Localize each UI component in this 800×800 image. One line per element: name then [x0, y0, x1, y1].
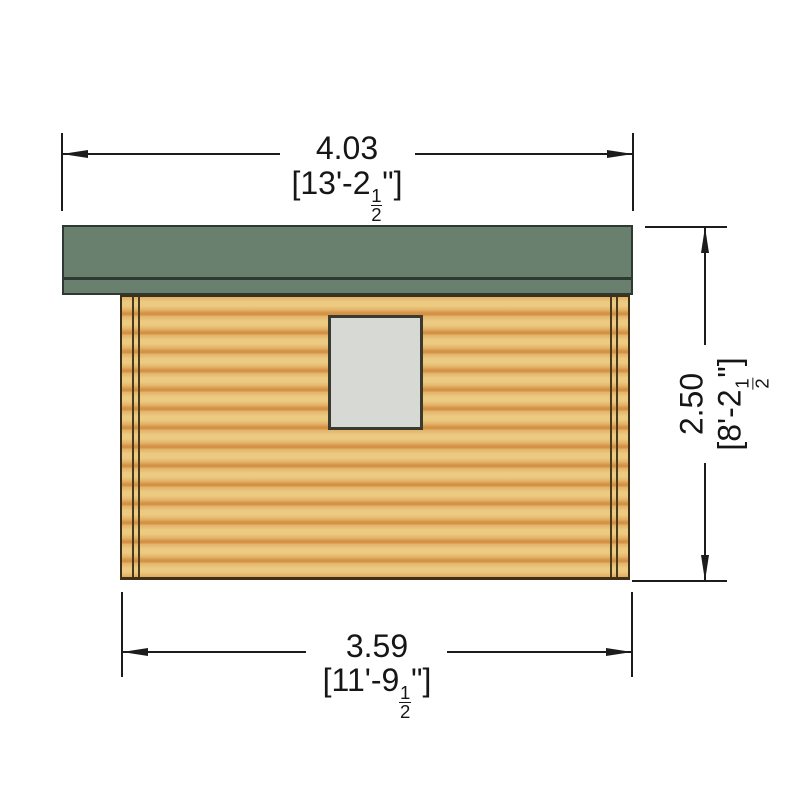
imperial-value: [8'-2 — [712, 389, 748, 450]
arrowhead-bottom — [701, 555, 709, 581]
fraction-denominator: 2 — [753, 378, 772, 390]
arrowhead-left — [122, 648, 148, 656]
extension-line-bottom — [632, 580, 727, 582]
arrowhead-left — [62, 150, 88, 158]
roof — [62, 225, 633, 295]
roof-fascia-line — [64, 277, 631, 280]
dimension-text-imperial: [8'-212"] — [711, 357, 772, 450]
imperial-value: [11'-9 — [323, 662, 400, 698]
extension-line-top — [645, 226, 727, 228]
fraction: 12 — [734, 378, 772, 390]
arrowhead-right — [607, 150, 633, 158]
dimension-text-group: 2.50 [8'-212"] — [672, 357, 771, 450]
extension-line-left — [121, 592, 123, 677]
fraction-denominator: 2 — [371, 206, 383, 225]
fraction-numerator: 1 — [734, 378, 754, 390]
window — [328, 315, 423, 430]
elevation-drawing: 4.03 [13'-212"] 3.59 [11'-912"] 2.50 [8'… — [0, 0, 800, 800]
extension-line-right — [631, 592, 633, 677]
arrowhead-right — [606, 648, 632, 656]
imperial-suffix: "] — [712, 357, 748, 377]
fraction: 12 — [399, 684, 411, 722]
corner-log-joint-line — [616, 297, 618, 577]
corner-log-joint-line — [132, 297, 134, 577]
extension-line-right — [632, 133, 634, 211]
imperial-suffix: "] — [411, 662, 431, 698]
fraction-denominator: 2 — [399, 703, 411, 722]
fraction: 12 — [371, 187, 383, 225]
dimension-text-metric: 4.03 — [197, 131, 497, 166]
imperial-value: [13'-2 — [291, 165, 370, 201]
dimension-text-metric: 2.50 — [672, 373, 710, 435]
extension-line-left — [61, 133, 63, 211]
dimension-text-imperial: [11'-912"] — [227, 663, 527, 722]
imperial-suffix: "] — [382, 165, 402, 201]
corner-log-joint-line — [610, 297, 612, 577]
dimension-text-imperial: [13'-212"] — [197, 166, 497, 225]
dimension-text-metric: 3.59 — [227, 629, 527, 664]
corner-log-joint-line — [138, 297, 140, 577]
arrowhead-top — [701, 227, 709, 253]
